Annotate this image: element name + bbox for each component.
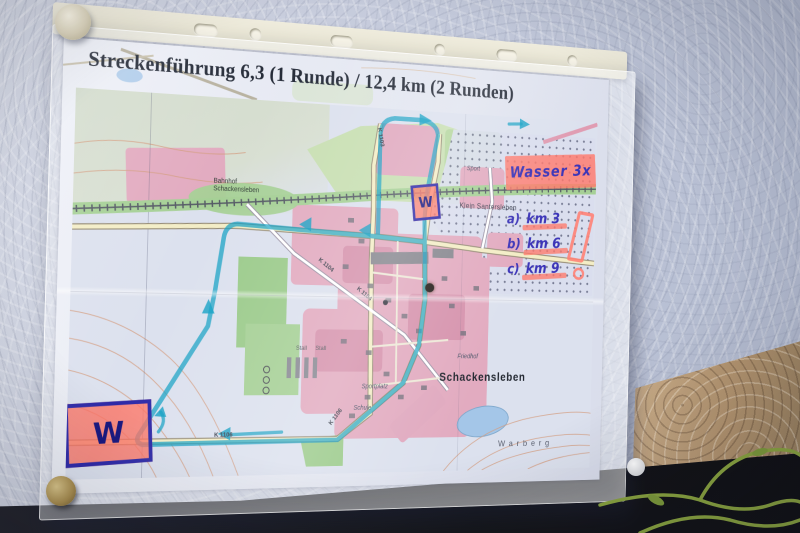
water-station-box-southwest: W: [65, 399, 152, 468]
km-mark-row: a)km 3: [507, 210, 562, 228]
photo-of-route-map-poster: Streckenführung 6,3 (1 Runde) / 12,4 km …: [0, 0, 800, 533]
label-schackensleben: Schackensleben: [439, 371, 526, 384]
printed-map-sheet: Streckenführung 6,3 (1 Runde) / 12,4 km …: [51, 37, 609, 494]
km-mark-row: b)km 6: [507, 235, 563, 253]
label-stall: Stall Stall: [296, 345, 326, 352]
pushpin-bottom-left: [46, 476, 76, 506]
road-label-k1106-a: K 1106: [214, 432, 233, 439]
label-sport: Sport: [467, 166, 480, 173]
sleeve-hole: [250, 28, 262, 40]
label-schule: Schule: [353, 405, 371, 412]
label-sportplatz: Sportplatz: [361, 384, 387, 391]
km-mark-row: c)km 9: [507, 259, 562, 277]
wasser-note: Wasser 3x: [505, 154, 596, 190]
exclamation-dot: [572, 267, 585, 281]
sleeve-hole: [330, 35, 352, 48]
label-bahnhof: Bahnhof Schackensleben: [213, 178, 259, 195]
km-value: km 6: [525, 235, 563, 252]
water-station-box-north: W: [410, 183, 441, 221]
sleeve-hole: [434, 43, 445, 55]
km-prefix: b): [507, 236, 521, 252]
sleeve-hole: [194, 23, 218, 37]
km-value: km 3: [524, 210, 562, 227]
topographic-map: Bahnhof Schackensleben Klein Santerslebe…: [65, 88, 597, 480]
road-pink-northeast: [543, 121, 597, 146]
label-warberg: Warberg: [498, 438, 553, 449]
km-prefix: c): [507, 261, 519, 277]
label-friedhof: Friedhof: [457, 354, 478, 360]
route-direction-arrows: [154, 94, 531, 441]
plastic-sleeve-assembly: Streckenführung 6,3 (1 Runde) / 12,4 km …: [45, 2, 626, 508]
sleeve-hole: [496, 49, 517, 61]
km-value: km 9: [523, 259, 561, 276]
sleeve-hole: [567, 55, 577, 66]
pushpin-top-left: [55, 4, 91, 40]
km-prefix: a): [507, 211, 520, 227]
pushpin-bottom-right: [627, 458, 645, 476]
